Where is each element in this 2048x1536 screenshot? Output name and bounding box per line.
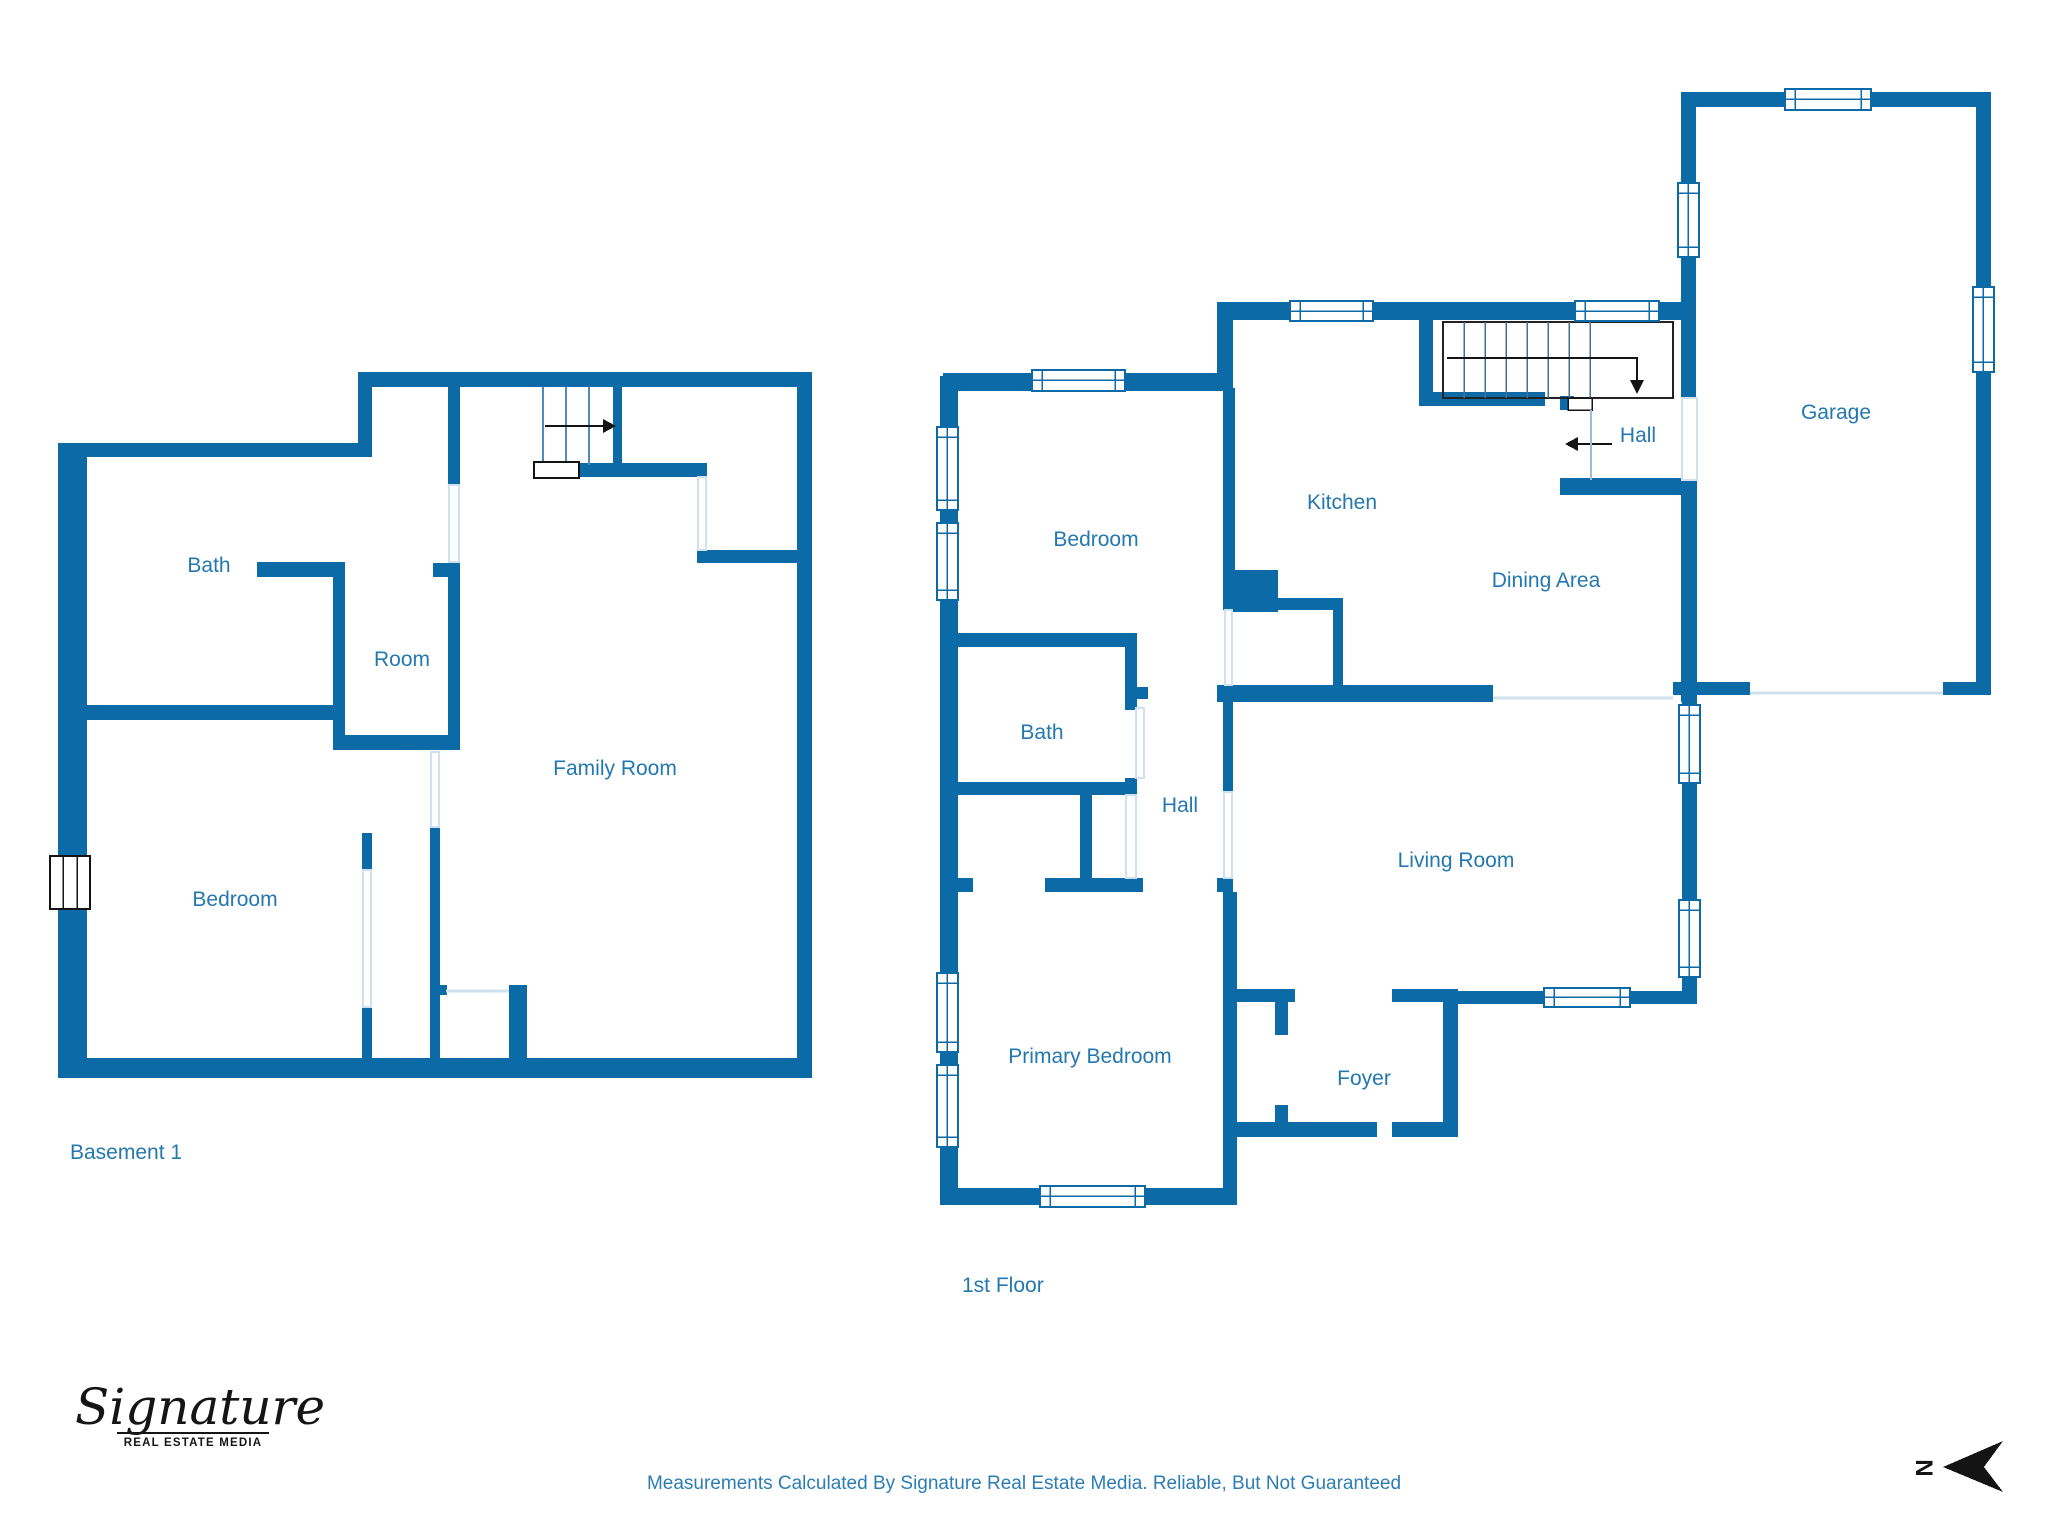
measurement-disclaimer: Measurements Calculated By Signature Rea… [0, 1473, 2048, 1495]
first-floor-door-openings [1126, 398, 1943, 878]
room-label-basement-room: Room [374, 648, 430, 672]
room-label-garage: Garage [1801, 401, 1871, 425]
room-label-basement-bedroom: Bedroom [192, 888, 277, 912]
first-floor-walls [940, 92, 1991, 1205]
basement-stair-landing [534, 462, 579, 478]
room-label-basement-bath: Bath [187, 554, 230, 578]
room-label-living-room: Living Room [1398, 849, 1515, 873]
logo-name-text: Signature [75, 1382, 325, 1432]
room-label-bedroom: Bedroom [1053, 528, 1138, 552]
room-label-hall-lower: Hall [1162, 794, 1198, 818]
room-label-foyer: Foyer [1337, 1067, 1391, 1091]
first-floor-floorplan [937, 89, 1994, 1207]
first-floor-plan-title: 1st Floor [962, 1274, 1044, 1298]
stair-up-arrow-head [1565, 437, 1578, 451]
room-label-kitchen: Kitchen [1307, 491, 1377, 515]
room-label-primary-bedroom: Primary Bedroom [1008, 1045, 1171, 1069]
room-label-family-room: Family Room [553, 757, 677, 781]
signature-logo: Signature REAL ESTATE MEDIA [75, 1382, 325, 1449]
room-label-hall-upper: Hall [1620, 424, 1656, 448]
room-label-bath: Bath [1020, 721, 1063, 745]
stair-down-arrow-shaft [1447, 358, 1637, 380]
basement-window [50, 856, 90, 909]
floorplan-page: N Bath Room Family Room Bedroom Basement… [0, 0, 2048, 1536]
basement-plan-title: Basement 1 [70, 1141, 182, 1165]
basement-floorplan [50, 372, 812, 1078]
stair-down-arrow-head [1630, 380, 1644, 394]
first-floor-stair-treads [1464, 322, 1590, 398]
first-floor-windows [937, 89, 1994, 1207]
room-label-dining-area: Dining Area [1492, 569, 1601, 593]
floorplan-drawing: N [0, 0, 2048, 1536]
stair-landing-step [1568, 398, 1592, 410]
